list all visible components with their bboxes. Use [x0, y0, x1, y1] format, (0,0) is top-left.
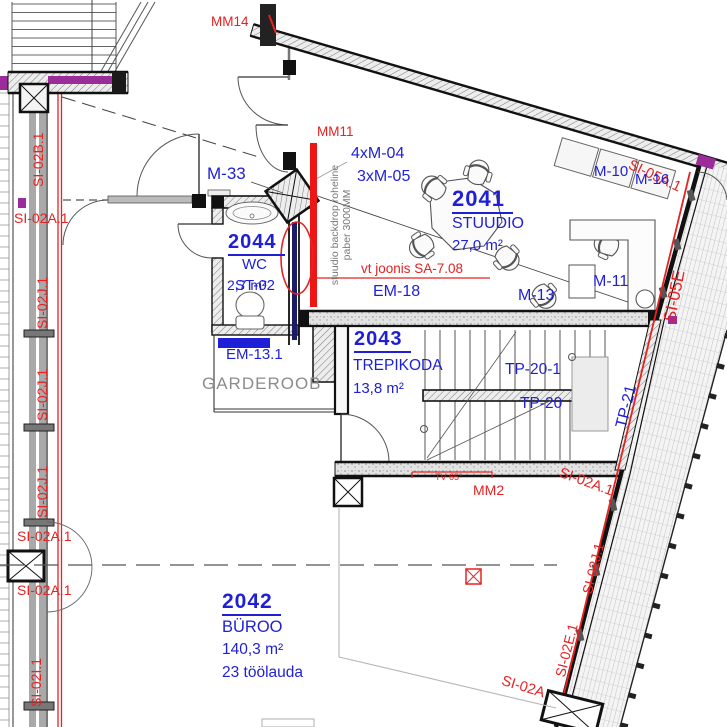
- room-2041-name: STUUDIO: [452, 216, 524, 232]
- label-m33: M-33: [207, 165, 246, 182]
- label-4xm04: 4xM-04: [351, 146, 404, 162]
- studio-entry-doors: [238, 44, 296, 172]
- label-backdrop-note: stuudio backdrop roheline paber 3000MM: [329, 149, 353, 301]
- label-si02a1-mid1: SI-02A.1: [17, 529, 71, 543]
- marker-square: [466, 569, 481, 584]
- label-tp20: TP-20: [520, 396, 562, 412]
- door-arc: [341, 414, 389, 462]
- backdrop-note-line2: paber 3000MM: [341, 149, 353, 301]
- floor-plan-canvas: MM14 MM11 vt joonis SA-7.08 TV 65° MM2 S…: [0, 0, 727, 727]
- backdrop-note-line1: stuudio backdrop roheline: [329, 149, 341, 301]
- room-2043-area: 13,8 m²: [353, 381, 404, 396]
- label-mm2: MM2: [473, 483, 504, 497]
- stair-landing: [572, 357, 608, 431]
- room-2043-name: TREPIKODA: [353, 358, 443, 374]
- label-si02a1-mid2: SI-02A.1: [17, 583, 71, 597]
- door-arc: [137, 134, 199, 196]
- label-si02i1: SI-02I.1: [29, 658, 43, 707]
- door-arc: [238, 77, 288, 125]
- label-garderoob: GARDEROOB: [202, 375, 322, 392]
- garderoob-walls: [214, 326, 336, 412]
- room-2044-number: 2044: [228, 232, 285, 256]
- room-2042-area: 140,3 m²: [222, 642, 283, 658]
- label-si02a1-top: SI-02A.1: [14, 211, 68, 225]
- label-si02j1-1: SI-02J.1: [35, 277, 49, 329]
- top-slanted-wall: [250, 24, 727, 176]
- label-m11: M-11: [593, 274, 628, 290]
- room-2043-number: 2043: [354, 329, 411, 353]
- corridor-wall: [63, 134, 206, 245]
- desk-m11: [569, 220, 655, 312]
- label-tv65: TV 65°: [435, 473, 463, 482]
- chair: [403, 228, 439, 265]
- room-2044-code: ST-02: [235, 278, 275, 293]
- label-si02j1-3: SI-02J.1: [35, 466, 49, 518]
- room-2044-name: WC: [242, 257, 267, 272]
- label-m10: M-10: [594, 164, 628, 179]
- deck-stairs: [12, 0, 155, 73]
- purple-accent: [0, 76, 8, 90]
- stair-left-wall: [335, 326, 348, 414]
- purple-accent: [18, 198, 26, 208]
- office-layout-lines: [262, 508, 556, 727]
- label-vt-joonis: vt joonis SA-7.08: [361, 262, 463, 276]
- label-mm11: MM11: [317, 125, 354, 139]
- label-em18: EM-18: [373, 284, 420, 300]
- label-si02j1-2: SI-02J.1: [35, 369, 49, 421]
- room-2042-number: 2042: [222, 591, 281, 616]
- label-mm14: MM14: [211, 15, 249, 29]
- column: [8, 551, 44, 581]
- reference-line: [62, 97, 262, 158]
- door-arc: [178, 224, 212, 258]
- round-table: [636, 290, 654, 308]
- label-m16: M-16: [635, 172, 669, 187]
- sink: [226, 202, 278, 224]
- label-3xm05: 3xM-05: [357, 169, 410, 185]
- label-m13: M-13: [518, 288, 554, 304]
- label-em131: EM-13.1: [226, 347, 283, 362]
- label-si02b1: SI-02B.1: [31, 133, 45, 187]
- room-2042-desks: 23 töölauda: [222, 665, 303, 681]
- room-2042-name: BÜROO: [222, 619, 283, 636]
- backdrop-bar: [310, 143, 317, 307]
- purple-accent: [48, 76, 116, 84]
- column: [20, 84, 48, 112]
- room-2041-area: 27,0 m²: [452, 238, 503, 253]
- label-tp201: TP-20-1: [505, 362, 561, 378]
- toilet: [236, 292, 264, 329]
- room-2041-number: 2041: [452, 188, 513, 214]
- door-arc: [63, 200, 108, 245]
